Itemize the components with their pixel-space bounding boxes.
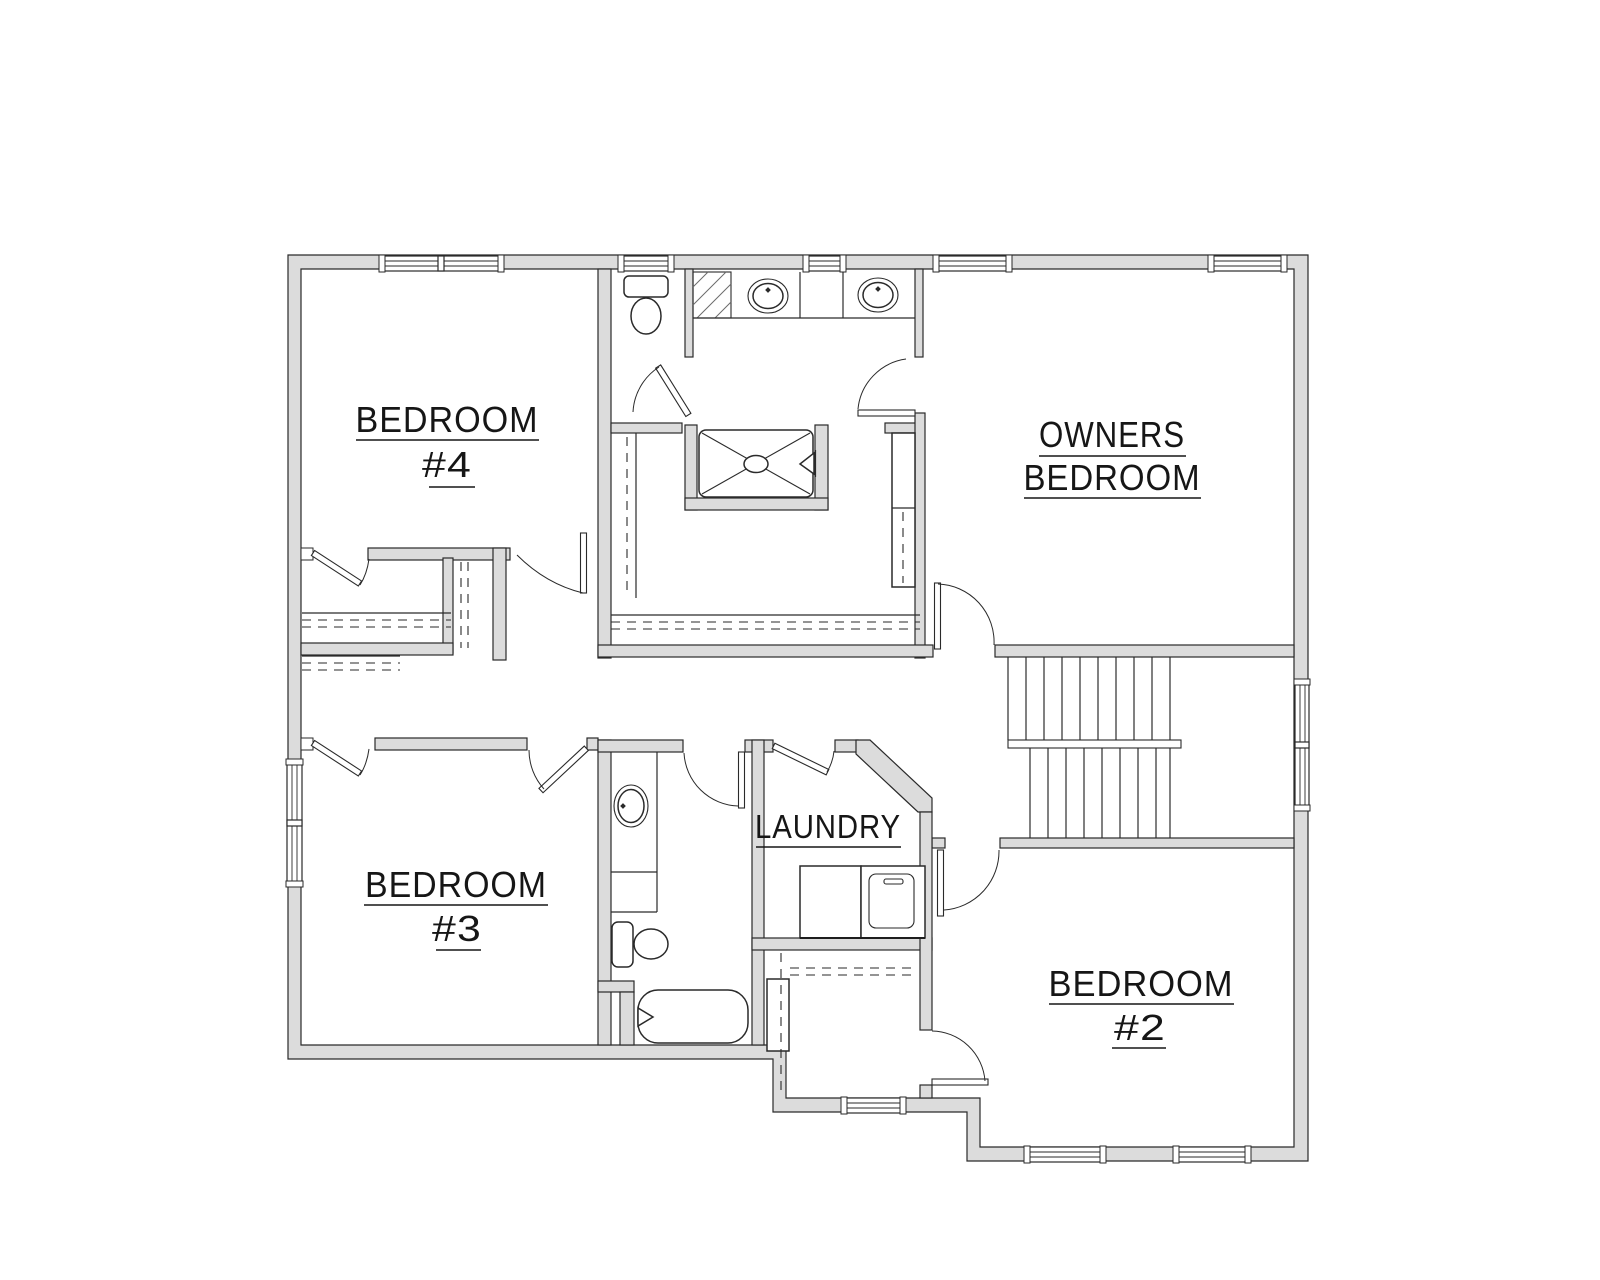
window-owners-right [1208, 255, 1287, 272]
door-bedroom2-closet [932, 1031, 988, 1085]
sink-icon-master-left [748, 279, 788, 313]
bedroom3-closet-shelf [302, 656, 400, 670]
room-label-owners: OWNERS BEDROOM [1024, 414, 1202, 498]
bedroom3-name: BEDROOM [365, 864, 547, 905]
door-bedroom4-closet [311, 550, 369, 586]
room-label-bedroom3: BEDROOM #3 [364, 864, 548, 950]
floor-plan-canvas: BEDROOM #4 OWNERS BEDROOM BEDROOM #3 BED… [0, 0, 1600, 1280]
bedroom4-name: BEDROOM [356, 399, 539, 440]
window-bedroom3 [286, 759, 303, 887]
vanity-master [693, 272, 915, 318]
stairs-upper-run [1008, 657, 1170, 740]
bedroom2-name: BEDROOM [1049, 963, 1234, 1004]
bedroom3-number: #3 [432, 908, 482, 949]
sink-icon-hall-bath [614, 785, 648, 827]
door-bedroom4-entry [517, 533, 587, 593]
vanity-hall-bath [611, 752, 657, 912]
window-bedroom2-left [1024, 1146, 1106, 1163]
washer-icon [800, 866, 861, 938]
owners-line1: OWNERS [1039, 414, 1185, 455]
bedroom2-closet-shelf [767, 953, 918, 1092]
linen-hatch [693, 272, 731, 318]
window-owners-left [933, 255, 1012, 272]
window-laundry-wall [841, 1097, 906, 1114]
toilet-icon-hall-bath [612, 922, 668, 967]
window-stairs [1294, 679, 1310, 811]
door-masterbath-owners [858, 359, 915, 416]
sink-icon-master-right [858, 278, 898, 312]
dryer-icon [861, 866, 925, 938]
room-label-bedroom4: BEDROOM #4 [356, 399, 540, 487]
tub-icon [638, 990, 748, 1043]
floor-plan-drawing: BEDROOM #4 OWNERS BEDROOM BEDROOM #3 BED… [0, 0, 1600, 1280]
bedroom2-number: #2 [1114, 1007, 1166, 1048]
bedroom4-number: #4 [422, 444, 472, 485]
laundry-name: LAUNDRY [755, 808, 901, 845]
door-wc [633, 365, 691, 417]
room-label-bedroom2: BEDROOM #2 [1049, 963, 1235, 1048]
shower-icon [699, 430, 816, 497]
door-owners-entry [935, 583, 995, 649]
hall-closet-shelf [461, 562, 468, 648]
owners-closet-cabinet [892, 433, 915, 587]
stairs-rail [1008, 740, 1181, 748]
window-bedroom2-right [1173, 1146, 1251, 1163]
bedroom4-closet-shelf [302, 613, 451, 627]
window-wc [618, 255, 674, 272]
owners-line2: BEDROOM [1024, 457, 1201, 498]
door-bedroom3-entry [529, 746, 588, 793]
window-bedroom4 [379, 255, 504, 272]
room-label-laundry: LAUNDRY [755, 808, 901, 847]
door-hall-bath [684, 752, 745, 808]
window-master-bath [803, 255, 846, 272]
door-bedroom2-entry [938, 850, 1000, 916]
door-laundry [772, 743, 834, 775]
toilet-icon-wc [624, 276, 668, 334]
stairs [1008, 657, 1181, 838]
stairs-lower-run [1030, 748, 1170, 838]
door-bedroom3-closet [311, 740, 369, 776]
